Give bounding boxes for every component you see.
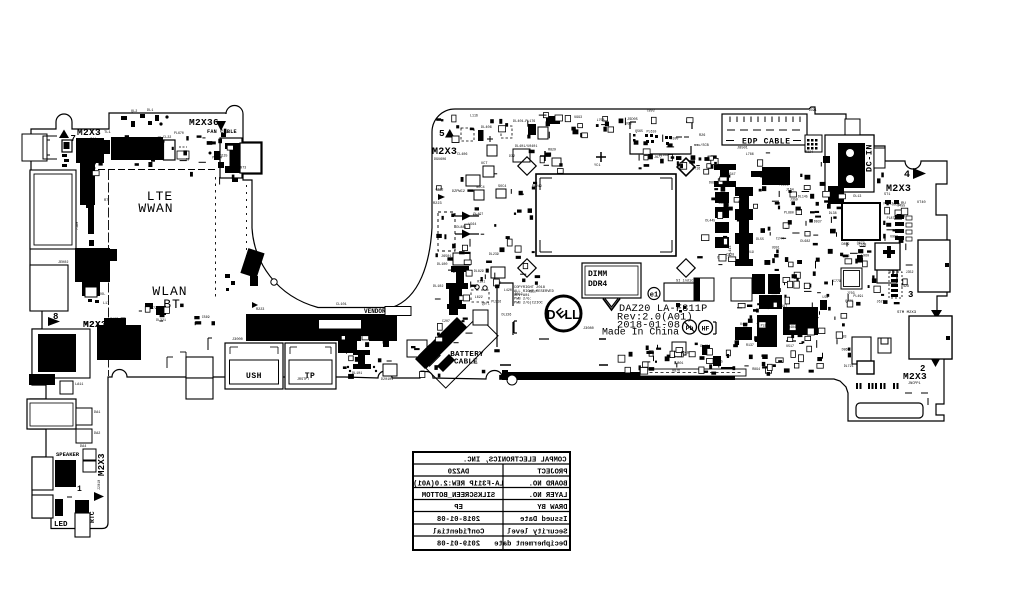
svg-text:M2X3: M2X3 xyxy=(903,371,927,382)
svg-text:2019-01-08: 2019-01-08 xyxy=(437,541,480,549)
svg-text:C893: C893 xyxy=(647,109,655,113)
svg-text:TL1: TL1 xyxy=(104,131,112,135)
svg-text:ST1: ST1 xyxy=(884,193,890,197)
svg-text:Decipherment date: Decipherment date xyxy=(494,541,567,549)
svg-text:Confidential: Confidential xyxy=(432,529,484,537)
svg-text:M2X3: M2X3 xyxy=(97,453,107,476)
svg-text:UT40: UT40 xyxy=(917,201,926,205)
svg-text:D135: D135 xyxy=(220,153,228,157)
svg-text:J359: J359 xyxy=(790,198,798,202)
svg-text:L43: L43 xyxy=(740,203,746,207)
svg-text:R894: R894 xyxy=(752,367,760,371)
svg-text:L758: L758 xyxy=(597,118,605,122)
svg-text:C569: C569 xyxy=(202,315,210,319)
svg-text:mmu/SCB: mmu/SCB xyxy=(694,143,709,148)
svg-text:DL889: DL889 xyxy=(456,225,466,229)
svg-text:DA1: DA1 xyxy=(94,411,100,415)
svg-text:3: 3 xyxy=(908,290,913,300)
svg-text:J3201: J3201 xyxy=(295,338,306,342)
svg-text:Issued Date: Issued Date xyxy=(520,516,567,524)
svg-text:L420: L420 xyxy=(504,288,512,292)
svg-text:DL100: DL100 xyxy=(437,263,448,267)
svg-text:PL491: PL491 xyxy=(853,294,863,298)
svg-text:D32: D32 xyxy=(509,154,515,158)
svg-text:DAZ20: DAZ20 xyxy=(448,469,470,477)
svg-text:R137: R137 xyxy=(746,343,754,347)
svg-text:DL829: DL829 xyxy=(474,269,484,273)
svg-text:SOC4: SOC4 xyxy=(498,185,506,189)
svg-text:JEK02: JEK02 xyxy=(58,261,69,265)
svg-text:J703: J703 xyxy=(847,291,855,295)
svg-text:C193: C193 xyxy=(436,188,444,192)
svg-text:Q347: Q347 xyxy=(728,172,736,176)
svg-text:DL102: DL102 xyxy=(433,285,444,289)
svg-text:Q907: Q907 xyxy=(88,167,96,171)
svg-text:DL239: DL239 xyxy=(489,252,499,256)
svg-text:PWB 2/G(C2IOC: PWB 2/G(C2IOC xyxy=(514,301,544,306)
svg-text:DOL: DOL xyxy=(99,293,105,297)
svg-text:DL445: DL445 xyxy=(705,218,715,222)
svg-text:L116: L116 xyxy=(470,114,478,118)
svg-text:SPEAKER: SPEAKER xyxy=(56,451,80,458)
svg-text:R26: R26 xyxy=(699,134,705,138)
svg-text:DA2: DA2 xyxy=(94,432,100,436)
svg-text:Pb: Pb xyxy=(686,325,694,332)
svg-text:DL1: DL1 xyxy=(147,109,153,113)
svg-text:DDR4: DDR4 xyxy=(588,280,607,289)
svg-text:PL828: PL828 xyxy=(761,323,771,327)
svg-text:JNCPP1: JNCPP1 xyxy=(908,382,921,386)
svg-text:L786: L786 xyxy=(746,152,754,156)
svg-text:USH: USH xyxy=(246,372,262,381)
svg-text:U175: U175 xyxy=(715,359,723,363)
svg-text:DL406: DL406 xyxy=(481,126,492,130)
svg-text:U818: U818 xyxy=(739,233,747,237)
svg-text:Q484: Q484 xyxy=(788,325,796,329)
svg-text:PL353: PL353 xyxy=(779,182,789,186)
svg-text:R829: R829 xyxy=(548,147,556,151)
svg-text:DL321: DL321 xyxy=(156,318,166,322)
svg-text:LA11: LA11 xyxy=(75,383,83,387)
svg-text:STM M2X3: STM M2X3 xyxy=(897,311,917,315)
svg-text:1: 1 xyxy=(77,485,82,494)
svg-text:C779: C779 xyxy=(833,279,841,283)
svg-text:PL670: PL670 xyxy=(174,131,184,135)
svg-text:PROJECT: PROJECT xyxy=(537,469,568,477)
svg-text:U517: U517 xyxy=(786,344,794,348)
svg-text:R257: R257 xyxy=(529,290,537,294)
svg-text:R876: R876 xyxy=(672,369,680,373)
svg-text:R223: R223 xyxy=(433,202,442,206)
svg-text:M2X3: M2X3 xyxy=(432,147,457,158)
svg-text:DRAW BY: DRAW BY xyxy=(537,504,568,512)
svg-text:e1: e1 xyxy=(650,292,658,300)
svg-text:D391: D391 xyxy=(809,108,817,112)
svg-text:JRSTPT: JRSTPT xyxy=(297,378,309,382)
svg-text:YC1: YC1 xyxy=(594,164,600,168)
svg-text:Q31: Q31 xyxy=(447,336,453,340)
svg-text:DIMM: DIMM xyxy=(588,270,607,279)
svg-text:U301: U301 xyxy=(772,245,780,249)
svg-text:D324: D324 xyxy=(805,150,813,154)
svg-text:D869: D869 xyxy=(842,347,850,351)
svg-text:PL463: PL463 xyxy=(144,154,154,158)
svg-text:C228: C228 xyxy=(726,253,734,257)
svg-text:J3000: J3000 xyxy=(232,338,243,342)
svg-text:PL512: PL512 xyxy=(884,201,894,205)
svg-text:J8501: J8501 xyxy=(737,147,748,151)
svg-text:J3: J3 xyxy=(185,158,189,162)
svg-text:D859: D859 xyxy=(842,242,850,246)
svg-text:Q571: Q571 xyxy=(482,302,490,306)
svg-text:PL176: PL176 xyxy=(525,119,535,123)
svg-text:U38: U38 xyxy=(626,121,632,125)
svg-text:DL145: DL145 xyxy=(798,195,808,199)
svg-text:Made In China: Made In China xyxy=(602,327,679,338)
svg-text:U968: U968 xyxy=(890,235,898,239)
svg-text:Security level: Security level xyxy=(506,529,567,537)
svg-text:SILKSCREEN_BOTTOM: SILKSCREEN_BOTTOM xyxy=(422,492,495,500)
svg-text:L622: L622 xyxy=(475,295,483,299)
svg-text:U993: U993 xyxy=(574,115,582,119)
svg-text:DL721: DL721 xyxy=(844,364,854,368)
svg-text:C716: C716 xyxy=(692,167,700,171)
svg-text:Q565: Q565 xyxy=(635,129,643,133)
svg-text:EP: EP xyxy=(454,504,463,512)
svg-text:J708: J708 xyxy=(859,242,867,246)
svg-text:DL13: DL13 xyxy=(853,194,861,198)
svg-text:UCT: UCT xyxy=(481,162,488,166)
svg-text:DL497: DL497 xyxy=(473,212,483,216)
svg-text:DL154: DL154 xyxy=(700,344,710,348)
svg-text:M2X3: M2X3 xyxy=(83,319,107,330)
svg-text:PL880: PL880 xyxy=(784,210,794,214)
svg-text:DL226: DL226 xyxy=(502,313,512,317)
svg-text:R44: R44 xyxy=(90,137,96,141)
svg-text:M2X36: M2X36 xyxy=(189,117,219,128)
svg-text:2018-01-08: 2018-01-08 xyxy=(437,516,480,524)
svg-text:DZPWC2: DZPWC2 xyxy=(452,190,465,194)
svg-text:R7: R7 xyxy=(104,199,108,203)
svg-text:D19: D19 xyxy=(748,250,754,254)
svg-text:DL38: DL38 xyxy=(829,211,837,215)
svg-text:DL401/U0401: DL401/U0401 xyxy=(515,144,537,149)
svg-text:R988: R988 xyxy=(344,347,352,351)
svg-text:DC-IN: DC-IN xyxy=(865,144,875,172)
svg-text:WWAN: WWAN xyxy=(138,201,173,216)
svg-text:PL610: PL610 xyxy=(647,130,657,134)
svg-text:LAYER NO.: LAYER NO. xyxy=(529,492,568,500)
svg-text:D937: D937 xyxy=(814,219,822,223)
svg-text:LA-F311P REW:2.0(A01): LA-F311P REW:2.0(A01) xyxy=(413,481,504,489)
svg-text:LED: LED xyxy=(54,521,68,529)
svg-text:R223: R223 xyxy=(256,308,264,312)
svg-text:DL682: DL682 xyxy=(800,239,810,243)
svg-text:DGU606: DGU606 xyxy=(434,158,446,162)
svg-text:5: 5 xyxy=(439,128,445,139)
svg-text:D428: D428 xyxy=(901,284,909,288)
svg-text:LL: LL xyxy=(565,308,581,322)
svg-text:D89: D89 xyxy=(709,180,715,184)
svg-text:D100: D100 xyxy=(670,137,678,141)
svg-text:71DM: 71DM xyxy=(76,222,80,230)
svg-text:U490: U490 xyxy=(740,322,748,326)
svg-text:D313: D313 xyxy=(515,292,523,296)
svg-text:J455: J455 xyxy=(897,203,905,207)
svg-text:DA4: DA4 xyxy=(80,445,86,449)
svg-text:U801: U801 xyxy=(676,361,684,365)
svg-text:DL55: DL55 xyxy=(756,237,764,241)
svg-text:4: 4 xyxy=(904,170,910,181)
svg-text:J2010: J2010 xyxy=(98,480,102,490)
svg-text:D20101: D20101 xyxy=(381,378,393,382)
svg-text:CL101: CL101 xyxy=(336,303,347,307)
svg-text:CABLE: CABLE xyxy=(454,359,478,367)
svg-text:L960: L960 xyxy=(861,254,869,258)
svg-text:CL22: CL22 xyxy=(163,136,171,140)
svg-text:J3080: J3080 xyxy=(583,327,594,331)
svg-text:M2X3: M2X3 xyxy=(77,127,101,138)
svg-text:HF: HF xyxy=(702,326,710,333)
svg-text:EDP CABLE: EDP CABLE xyxy=(742,138,791,147)
svg-text:L56: L56 xyxy=(822,295,828,299)
svg-text:D167: D167 xyxy=(110,317,118,321)
svg-text:COMPAL ELECTRONICS, INC.: COMPAL ELECTRONICS, INC. xyxy=(463,457,567,465)
svg-text:J677: J677 xyxy=(654,155,662,159)
svg-text:BOARD NO.: BOARD NO. xyxy=(529,481,568,489)
svg-text:CL406: CL406 xyxy=(457,153,468,157)
svg-text:R648: R648 xyxy=(681,351,689,355)
svg-text:QL2: QL2 xyxy=(131,110,137,114)
svg-text:SOC4: SOC4 xyxy=(476,186,485,190)
svg-text:J352: J352 xyxy=(906,270,914,274)
svg-text:PL167: PL167 xyxy=(777,304,787,308)
svg-text:J973: J973 xyxy=(238,165,246,169)
svg-text:DL401-: DL401- xyxy=(513,120,526,124)
svg-text:PL516: PL516 xyxy=(491,299,501,303)
svg-text:D835: D835 xyxy=(719,201,727,205)
svg-text:C207: C207 xyxy=(442,319,450,323)
